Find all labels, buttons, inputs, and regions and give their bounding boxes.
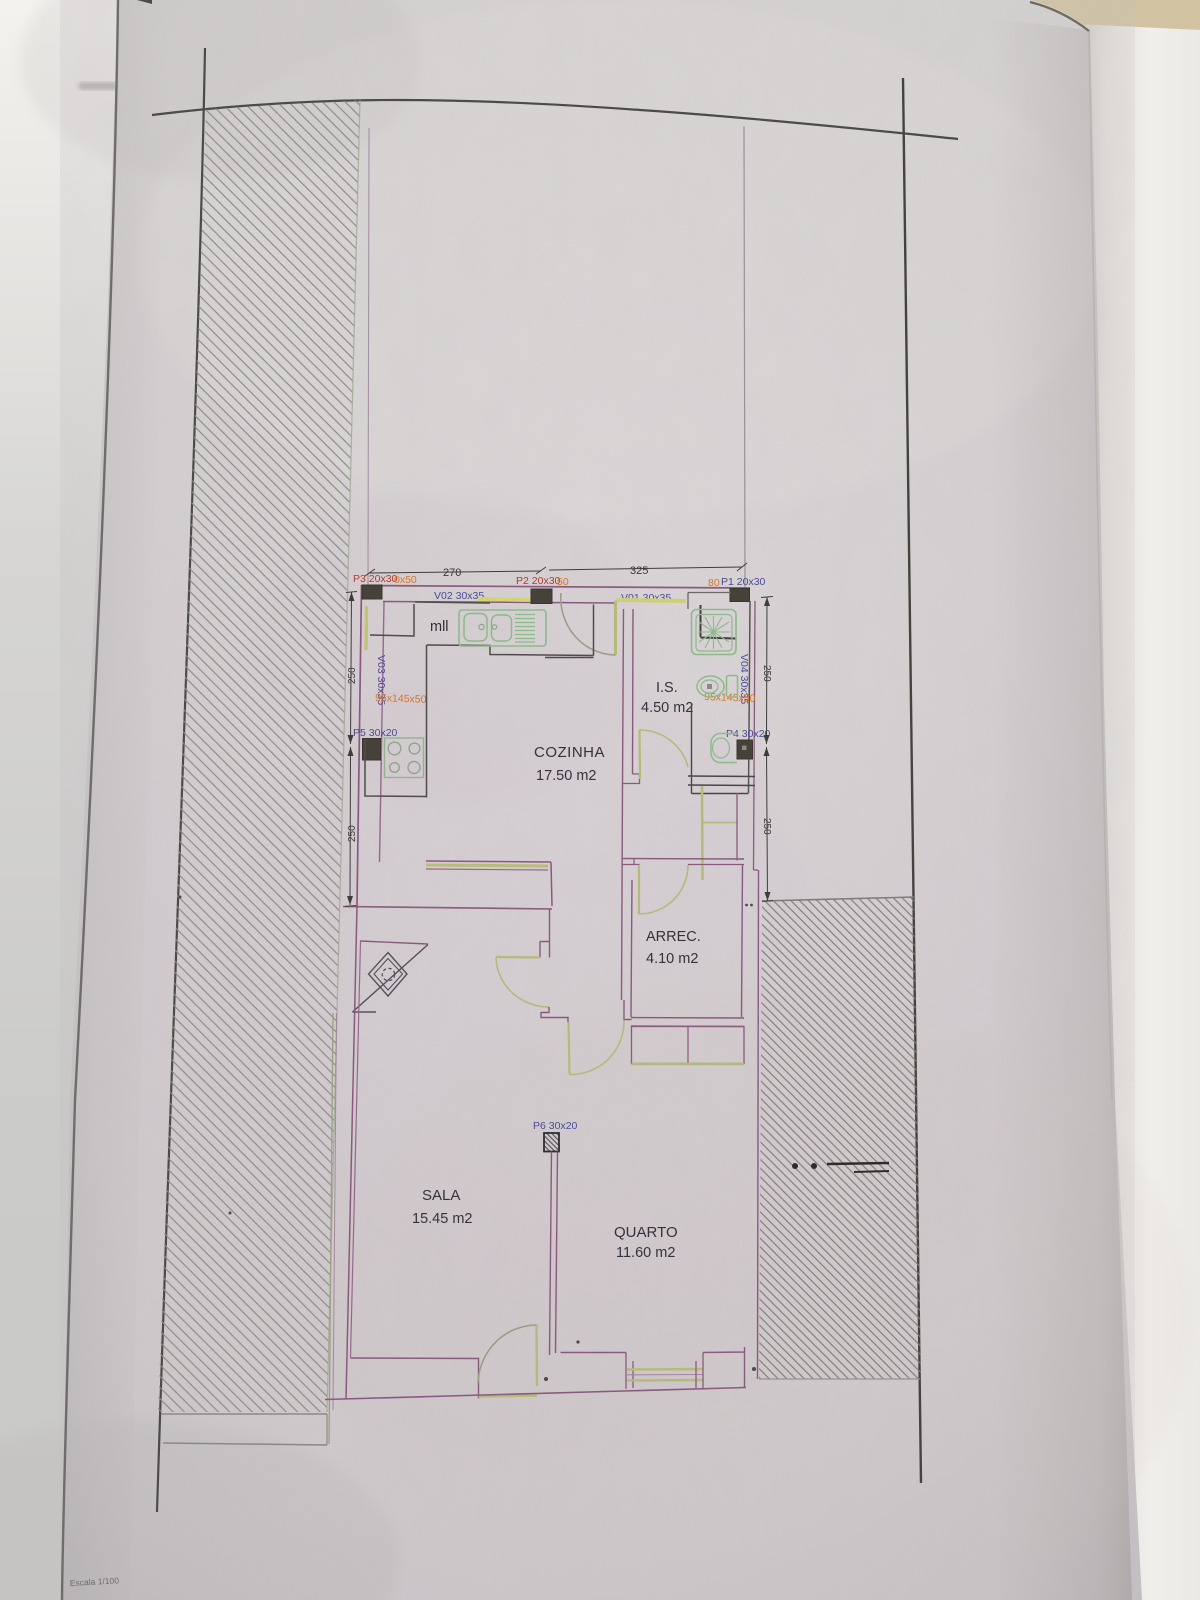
svg-text:95x145x50: 95x145x50 (375, 692, 427, 706)
svg-text:QUARTO: QUARTO (614, 1224, 678, 1241)
svg-text:mll: mll (430, 619, 449, 635)
svg-text:250: 250 (761, 818, 772, 835)
svg-text:17.50 m2: 17.50 m2 (536, 768, 596, 784)
svg-text:4.10 m2: 4.10 m2 (646, 951, 698, 967)
svg-text:ARREC.: ARREC. (646, 929, 701, 945)
svg-text:250: 250 (347, 825, 358, 842)
svg-text:P2 20x30: P2 20x30 (516, 575, 561, 587)
svg-text:V02 30x35: V02 30x35 (434, 590, 484, 602)
svg-text:P5 30x20: P5 30x20 (353, 727, 398, 739)
svg-text:250: 250 (761, 665, 772, 682)
svg-text:270: 270 (443, 567, 461, 579)
svg-text:250: 250 (347, 667, 358, 684)
svg-text:325: 325 (630, 565, 648, 577)
svg-text:SALA: SALA (422, 1187, 460, 1204)
svg-text:COZINHA: COZINHA (534, 744, 605, 761)
svg-text:I.S.: I.S. (656, 680, 678, 696)
svg-text:0x50: 0x50 (394, 574, 417, 586)
svg-text:P6 30x20: P6 30x20 (533, 1120, 578, 1132)
svg-text:P3 20x30: P3 20x30 (353, 573, 398, 585)
svg-text:11.60 m2: 11.60 m2 (616, 1245, 675, 1261)
svg-text:P1 20x30: P1 20x30 (721, 576, 766, 588)
svg-text:4.50 m2: 4.50 m2 (641, 700, 693, 716)
svg-text:15.45 m2: 15.45 m2 (412, 1211, 472, 1227)
